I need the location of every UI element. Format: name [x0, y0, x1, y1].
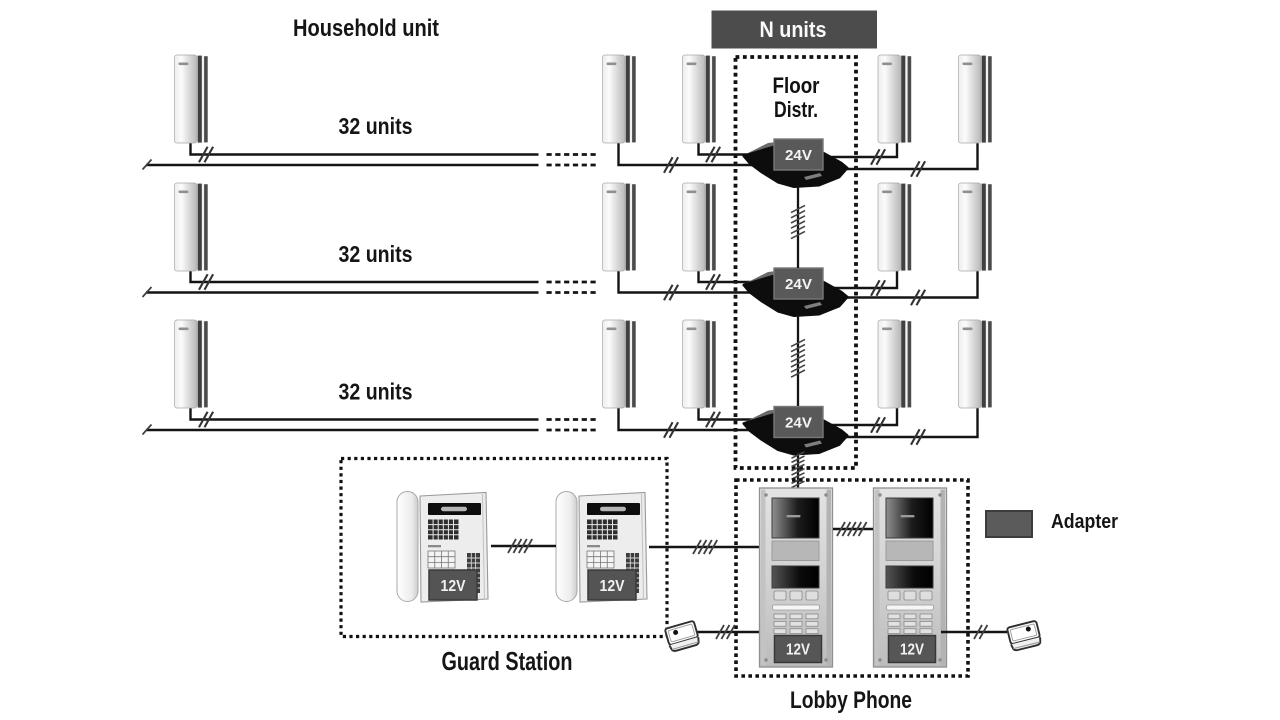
svg-text:Lobby Phone: Lobby Phone	[790, 687, 912, 714]
svg-text:Household unit: Household unit	[293, 15, 439, 42]
svg-text:Distr.: Distr.	[774, 97, 818, 122]
svg-text:32 units: 32 units	[339, 241, 413, 267]
svg-text:32 units: 32 units	[339, 113, 413, 139]
svg-text:Floor: Floor	[773, 73, 820, 98]
svg-text:Adapter: Adapter	[1051, 511, 1118, 533]
svg-text:32 units: 32 units	[339, 379, 413, 405]
svg-text:Guard Station: Guard Station	[442, 646, 573, 676]
svg-text:N units: N units	[760, 17, 827, 42]
